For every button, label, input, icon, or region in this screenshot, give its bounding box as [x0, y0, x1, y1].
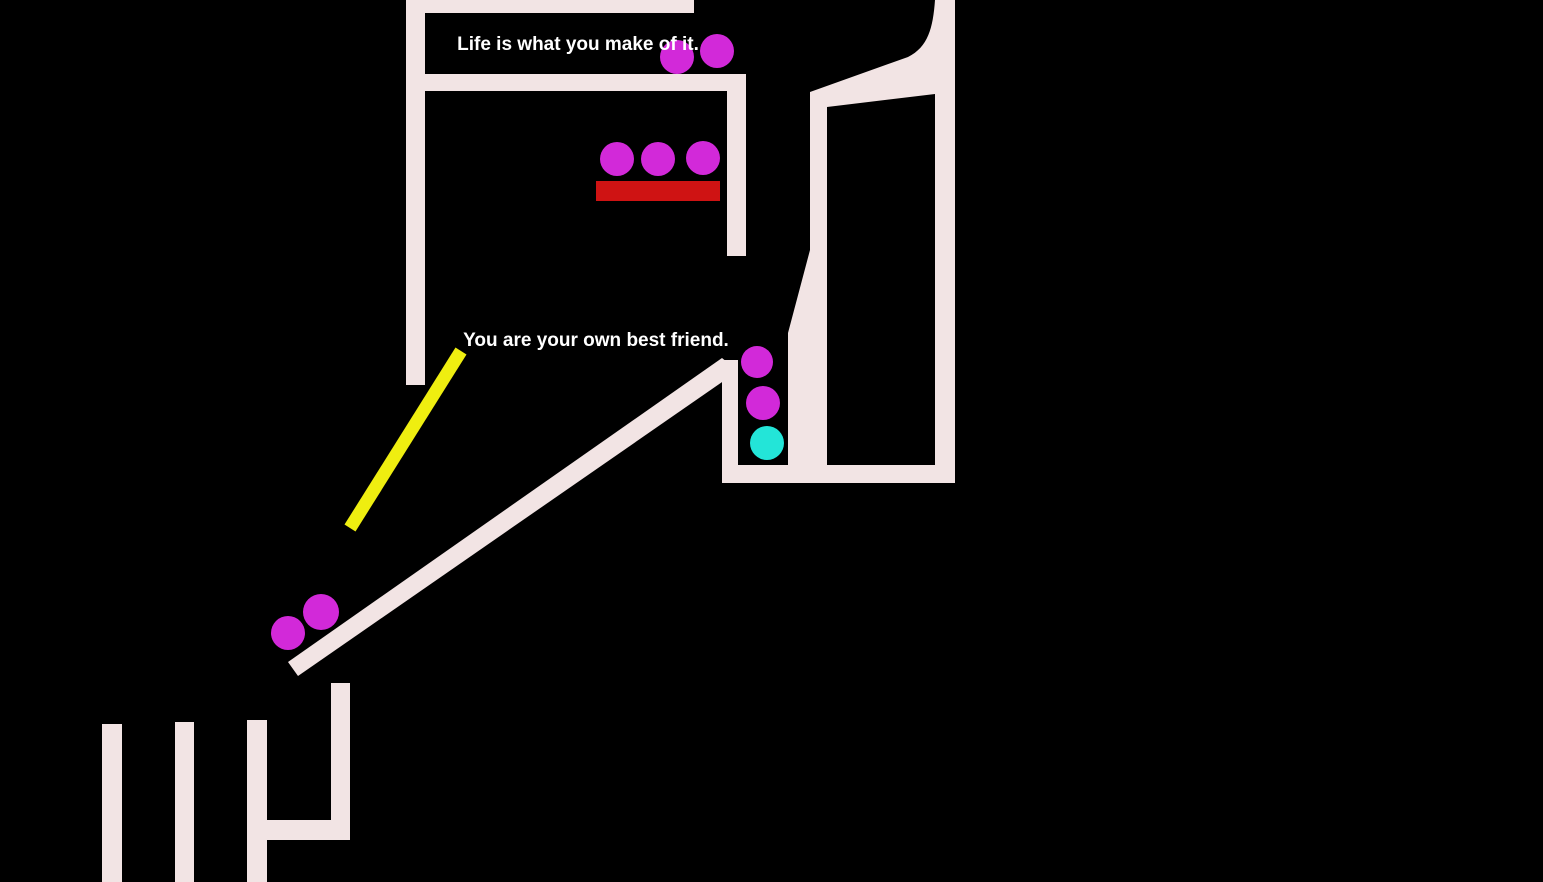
- red-block: [596, 181, 720, 201]
- magenta-ball: [271, 616, 305, 650]
- wall-top-horizontal: [406, 0, 694, 13]
- game-stage: Life is what you make of it. You are you…: [0, 0, 1543, 882]
- magenta-ball: [746, 386, 780, 420]
- wall-room-right-vertical: [727, 91, 746, 256]
- wall-inner-shelf: [425, 74, 746, 91]
- wall-comb-3: [247, 720, 267, 882]
- wall-comb-4: [331, 683, 350, 840]
- magenta-ball: [741, 346, 773, 378]
- magenta-ball: [303, 594, 339, 630]
- wall-comb-2: [175, 722, 194, 882]
- magenta-ball: [641, 142, 675, 176]
- quote-text-top: Life is what you make of it.: [457, 34, 699, 55]
- wall-comb-1: [102, 724, 122, 882]
- wall-right-tall-vertical: [935, 0, 955, 483]
- magenta-ball: [700, 34, 734, 68]
- cyan-ball: [750, 426, 784, 460]
- magenta-ball: [686, 141, 720, 175]
- wall-left-vertical: [406, 0, 425, 385]
- wall-comb-connector: [267, 820, 331, 840]
- game-canvas[interactable]: Life is what you make of it. You are you…: [0, 0, 1543, 882]
- quote-text-middle: You are your own best friend.: [463, 330, 729, 351]
- magenta-ball: [600, 142, 634, 176]
- wall-structure-bottom: [722, 465, 955, 483]
